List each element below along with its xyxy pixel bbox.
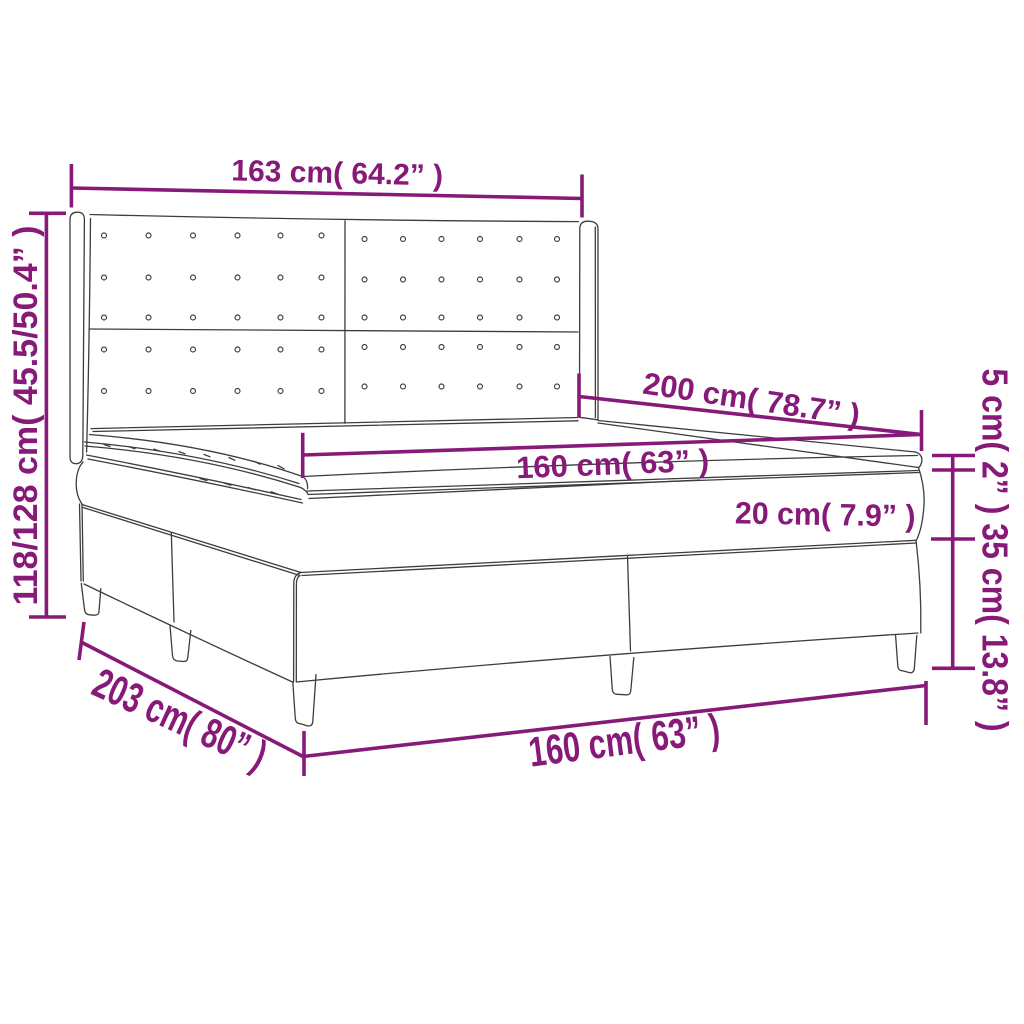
- svg-text:163 cm( 64.2” ): 163 cm( 64.2” ): [231, 154, 444, 192]
- svg-text:5 cm( 2” ) 35 cm( 13.8” ): 5 cm( 2” ) 35 cm( 13.8” ): [974, 368, 1014, 731]
- svg-text:20 cm( 7.9” ): 20 cm( 7.9” ): [735, 495, 916, 533]
- svg-text:118/128 cm( 45.5/50.4” ): 118/128 cm( 45.5/50.4” ): [7, 226, 45, 606]
